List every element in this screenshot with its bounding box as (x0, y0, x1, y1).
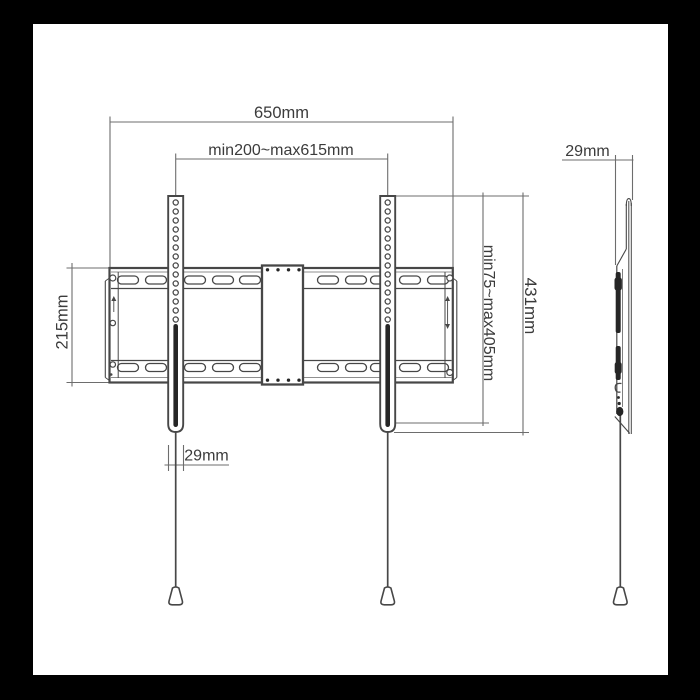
side-view: 29mm (562, 143, 634, 605)
dim-profile-depth-label: 29mm (565, 143, 609, 160)
dim-profile-depth (562, 155, 634, 265)
frame-left-bar (0, 0, 33, 700)
right-cord-weight (381, 587, 395, 605)
dim-total-width (110, 117, 453, 269)
dim-bracket-width-label: 29mm (184, 448, 228, 465)
frame-bottom-bar (0, 675, 700, 700)
dimension-drawing-svg: 650mm min200~max615mm 215mm min75~max405… (0, 0, 700, 700)
dim-plate-height (67, 263, 111, 387)
frame-top-bar (0, 0, 700, 24)
product-dimension-diagram: 650mm min200~max615mm 215mm min75~max405… (0, 0, 700, 700)
profile-hardware (615, 272, 624, 416)
dim-hole-span (176, 154, 388, 198)
left-cord-weight (169, 587, 183, 605)
dim-hole-span-label: min200~max615mm (208, 142, 353, 159)
right-vesa-bracket (380, 196, 395, 432)
dim-total-width-label: 650mm (254, 104, 309, 122)
left-vesa-bracket (168, 196, 183, 432)
dim-plate-height-label: 215mm (54, 294, 72, 349)
side-cord-weight (614, 587, 628, 605)
front-view: 650mm min200~max615mm 215mm min75~max405… (54, 104, 541, 605)
frame-right-bar (668, 0, 700, 700)
dim-bracket-height-label: 431mm (521, 278, 540, 335)
dim-vesa-range-label: min75~max405mm (480, 245, 497, 382)
center-plate (262, 266, 303, 385)
